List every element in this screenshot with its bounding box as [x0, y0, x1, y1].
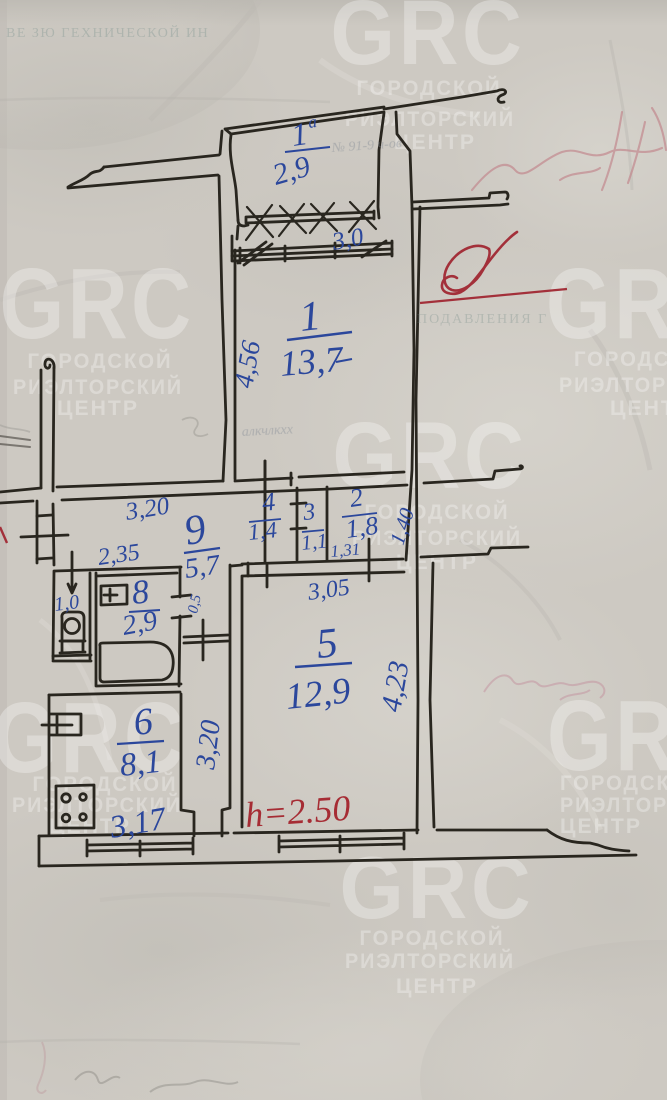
svg-text:1,4: 1,4: [247, 517, 278, 545]
svg-text:GRC: GRC: [0, 248, 195, 360]
svg-text:ГОРОДСКОЙ: ГОРОДСКОЙ: [560, 771, 667, 795]
svg-text:РИЭЛТОРСКИЙ: РИЭЛТОРСКИЙ: [345, 949, 515, 973]
svg-text:3: 3: [301, 499, 317, 526]
svg-text:ЦЕНТР: ЦЕНТР: [396, 975, 478, 998]
svg-text:2,9: 2,9: [120, 605, 160, 642]
svg-text:ЦЕНТР: ЦЕНТР: [57, 397, 139, 420]
svg-text:GRC: GRC: [340, 838, 535, 937]
svg-text:GRC: GRC: [331, 0, 526, 84]
svg-text:ГОРОДСКОЙ: ГОРОДСКОЙ: [574, 347, 667, 371]
svg-text:12,9: 12,9: [284, 670, 353, 718]
svg-text:ЦЕНТР: ЦЕНТР: [610, 397, 667, 420]
svg-text:ГОРОДСКОЙ: ГОРОДСКОЙ: [357, 76, 502, 100]
svg-text:ЦЕНТР: ЦЕНТР: [394, 131, 476, 154]
svg-text:8,1: 8,1: [118, 744, 163, 784]
svg-text:алкчлкхх: алкчлкхх: [241, 422, 294, 440]
svg-text:1,1: 1,1: [300, 528, 329, 555]
svg-text:РИЭЛТОРСКИЙ: РИЭЛТОРСКИЙ: [559, 373, 667, 397]
svg-text:ГОРОДСКОЙ: ГОРОДСКОЙ: [360, 926, 505, 950]
svg-text:1,0: 1,0: [53, 591, 80, 616]
svg-text:ПОДАВЛЕНИЯ Г: ПОДАВЛЕНИЯ Г: [417, 312, 548, 327]
svg-text:ВЕ ЗЮ ГЕХНИЧЕСКОЙ ИН: ВЕ ЗЮ ГЕХНИЧЕСКОЙ ИН: [6, 24, 209, 41]
svg-text:1,31: 1,31: [330, 539, 361, 561]
svg-text:РИЭЛТОРСКИЙ: РИЭЛТОРСКИЙ: [345, 107, 515, 131]
svg-text:1,8: 1,8: [344, 511, 380, 544]
svg-text:ГОРОДСКОЙ: ГОРОДСКОЙ: [28, 349, 173, 373]
svg-text:h=2.50: h=2.50: [244, 788, 352, 835]
svg-text:3,20: 3,20: [190, 718, 227, 771]
svg-text:ГОРОДСКОЙ: ГОРОДСКОЙ: [365, 500, 510, 524]
svg-text:РИЭЛТОРСКИЙ: РИЭЛТОРСКИЙ: [13, 375, 183, 399]
svg-text:ЦЕНТР: ЦЕНТР: [560, 815, 642, 838]
svg-text:5,7: 5,7: [183, 549, 223, 585]
svg-text:РИЭЛТОРСКИЙ: РИЭЛТОРСКИЙ: [560, 793, 667, 817]
svg-text:GRC: GRC: [546, 248, 667, 360]
